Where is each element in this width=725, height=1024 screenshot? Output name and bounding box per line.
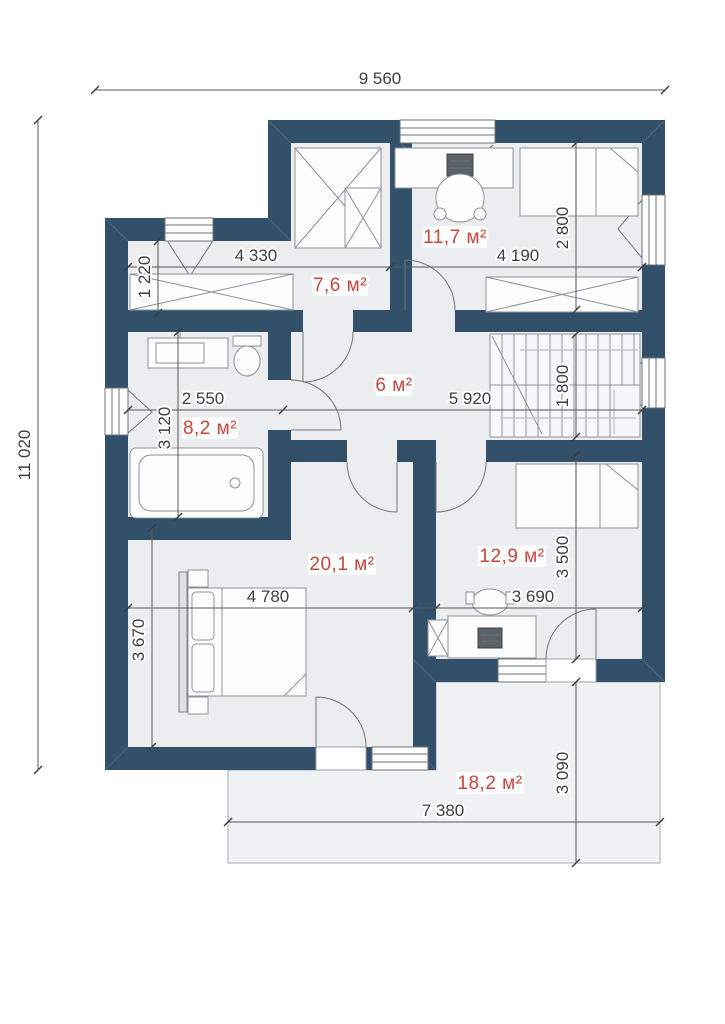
dim-terrace-width: 7 380: [422, 801, 465, 820]
area-label-top-bedroom: 11,7 м²: [423, 227, 487, 248]
wall-bath-south: [105, 517, 291, 540]
area-label-bathroom: 8,2 м²: [183, 418, 237, 439]
dim-terrace-height: 3 090: [553, 752, 572, 795]
chair-armrest: [434, 208, 446, 220]
window-bottom-left: [372, 747, 428, 770]
dim-top-bedroom-height: 2 800: [553, 207, 572, 250]
dim-bedroom-right-height: 3 500: [553, 536, 572, 579]
wall-hall-north-c: [455, 310, 642, 332]
nightstand: [188, 570, 208, 587]
dim-bedroom-right-width: 3 690: [512, 587, 555, 606]
toilet-bowl: [234, 346, 260, 376]
dim-staircase-height: 1 800: [553, 365, 572, 408]
sink-basin: [156, 343, 204, 363]
bathtub-inner: [139, 455, 254, 511]
dim-bedroom-left-height: 3 670: [129, 619, 148, 662]
chair-armrest: [466, 592, 474, 604]
dim-overall-height: 11 020: [15, 430, 34, 481]
wall-hall-south-a: [268, 440, 347, 462]
computer: [447, 154, 473, 176]
dim-wardrobe-width: 4 330: [235, 246, 278, 265]
office-chair: [472, 589, 508, 615]
dim-hallway-width: 5 920: [449, 389, 492, 408]
window-bottom-right: [498, 659, 546, 682]
bed-single: [520, 148, 638, 216]
pillow: [192, 592, 214, 640]
computer: [478, 628, 502, 648]
area-label-terrace: 18,2 м²: [457, 773, 522, 794]
area-label-hallway: 6 м²: [375, 375, 412, 396]
area-label-bedroom-left: 20,1 м²: [309, 554, 374, 575]
pillow: [192, 644, 214, 692]
dim-wardrobe-depth: 1 220: [135, 256, 154, 299]
floor-plan-canvas: 9 560 11 020 4 330 1 220 4 190 2 800 2 5…: [0, 0, 725, 1024]
wall-bath-east-a: [268, 332, 291, 380]
dim-top-bedroom-width: 4 190: [497, 246, 540, 265]
wall-hall-south-c: [486, 440, 642, 462]
bed-headboard: [179, 572, 187, 712]
dim-bedroom-left-width: 4 780: [247, 587, 290, 606]
dim-overall-width: 9 560: [359, 69, 402, 88]
chair-armrest: [474, 208, 486, 220]
wall-hall-north-b: [353, 310, 405, 332]
dim-bathroom-height: 3 120: [155, 407, 174, 450]
area-label-wardrobe: 7,6 м²: [313, 275, 367, 296]
nightstand: [188, 697, 208, 714]
wall-hall-north-a: [128, 310, 303, 332]
dim-bathroom-width: 2 550: [182, 389, 225, 408]
toilet-tank: [233, 336, 261, 346]
area-label-bedroom-right: 12,9 м²: [479, 546, 544, 567]
